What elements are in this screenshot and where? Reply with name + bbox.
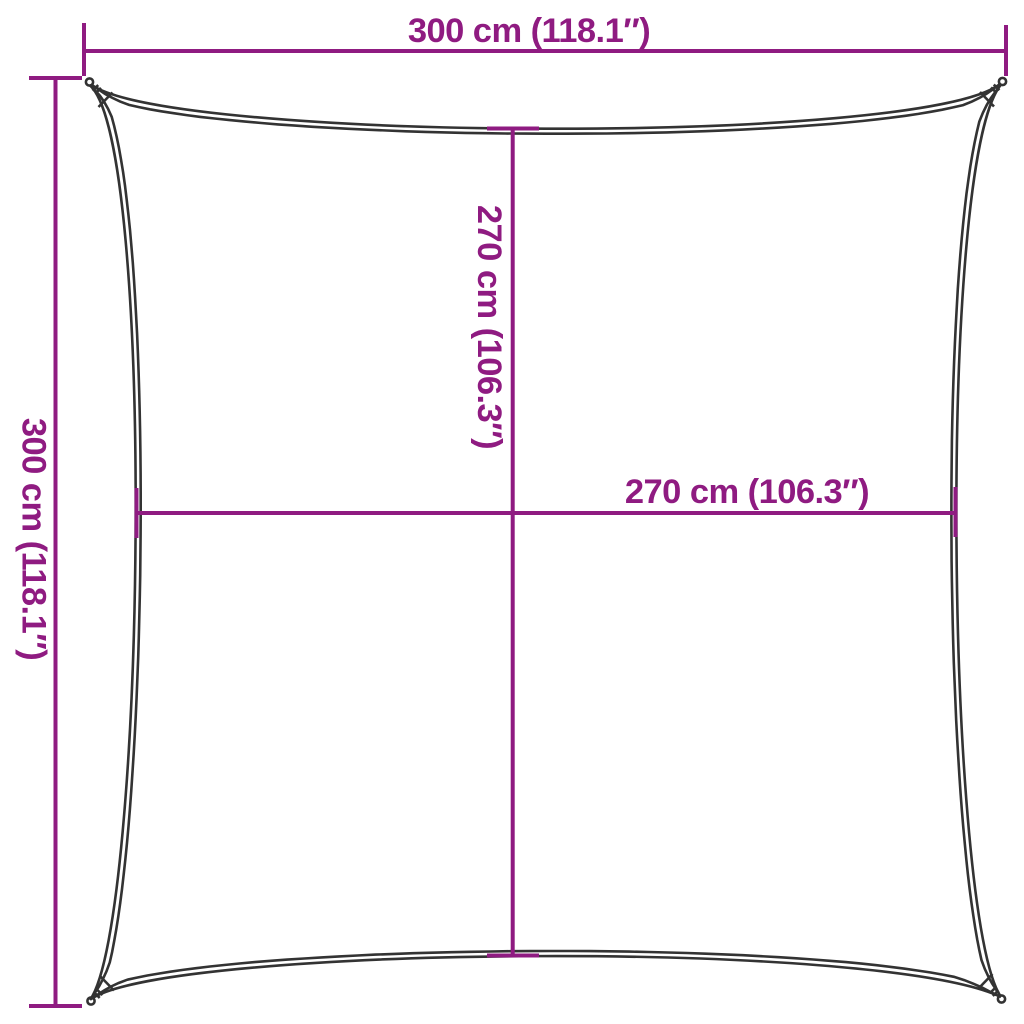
svg-text:300 cm (118.1″): 300 cm (118.1″) [408, 12, 650, 50]
svg-text:300 cm (118.1″): 300 cm (118.1″) [15, 418, 53, 660]
svg-text:270 cm (106.3″): 270 cm (106.3″) [625, 473, 869, 511]
svg-text:270 cm (106.3″): 270 cm (106.3″) [470, 205, 508, 449]
